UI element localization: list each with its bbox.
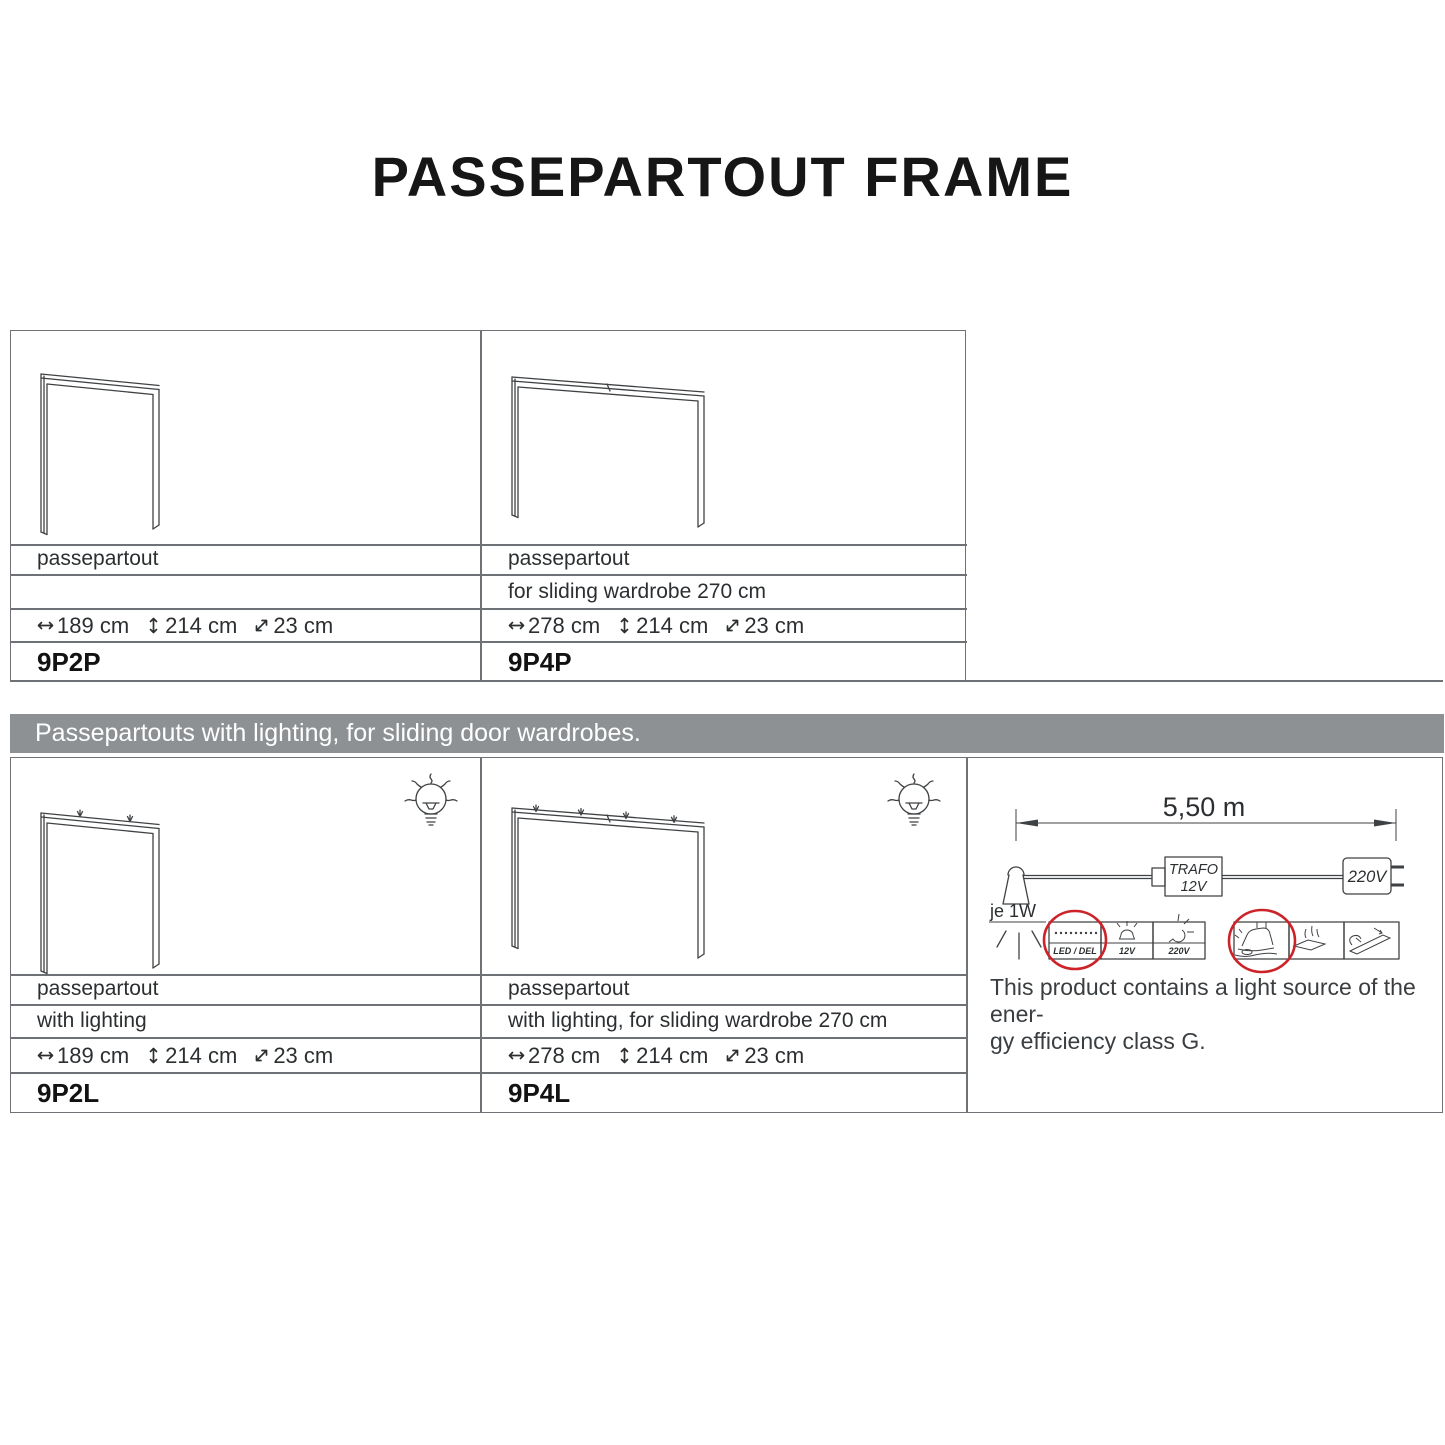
- dimension-depth: 23 cm: [724, 1043, 804, 1069]
- bulb-glyph: [1169, 914, 1194, 942]
- product-description: with lighting: [11, 1004, 480, 1038]
- dimension-height: 214 cm: [145, 613, 237, 639]
- table-divider: [966, 758, 968, 1112]
- depth-arrow-icon: [724, 617, 741, 634]
- product-description: [11, 575, 480, 609]
- transformer-label: TRAFO: [1169, 862, 1218, 878]
- product-description: for sliding wardrobe 270 cm: [482, 575, 967, 609]
- product-code: 9P4P: [482, 642, 967, 682]
- dimension-depth: 23 cm: [724, 613, 804, 639]
- lightbulb-icon: [886, 772, 942, 838]
- dimension-depth: 23 cm: [253, 613, 333, 639]
- product-cell-9p4p: passepartout for sliding wardrobe 270 cm…: [482, 331, 967, 681]
- dimension-width: 278 cm: [508, 613, 600, 639]
- width-arrow-icon: [508, 617, 525, 634]
- lighting-section-banner: Passepartouts with lighting, for sliding…: [10, 714, 1444, 753]
- lightbulb-icon: [403, 772, 459, 838]
- catalog-page: PASSEPARTOUT FRAME passepartout 189 cm: [0, 0, 1445, 1445]
- svg-text:LED / DEL: LED / DEL: [1053, 946, 1097, 956]
- mains-label: 220V: [1347, 868, 1389, 886]
- light-position-mark: [78, 810, 83, 817]
- product-name: passepartout: [11, 974, 480, 1004]
- dimension-width: 189 cm: [37, 1043, 129, 1069]
- dimension-height: 214 cm: [616, 1043, 708, 1069]
- cable-connector: [1152, 868, 1165, 886]
- dimension-height: 214 cm: [616, 613, 708, 639]
- depth-arrow-icon: [253, 1047, 270, 1064]
- led-batten-glyph: [1350, 928, 1390, 954]
- frame-drawing-icon: [35, 361, 175, 539]
- arrowhead-right: [1374, 820, 1396, 827]
- cable-line: [1024, 876, 1152, 879]
- product-cell-9p2p: passepartout 189 cm 214 cm 23 cm 9P2P: [11, 331, 480, 681]
- dimension-depth: 23 cm: [253, 1043, 333, 1069]
- red-highlight-circle: [1229, 910, 1295, 972]
- product-dimensions: 278 cm 214 cm 23 cm: [482, 1038, 966, 1073]
- led-dots: [1055, 932, 1097, 934]
- touch-dimmer-icon: [1289, 922, 1344, 959]
- dimension-width: 278 cm: [508, 1043, 600, 1069]
- product-dimensions: 189 cm 214 cm 23 cm: [11, 609, 480, 642]
- section-divider: [10, 680, 1443, 682]
- cable-length-label: 5,50 m: [1163, 792, 1246, 822]
- product-cell-9p4l: passepartout with lighting, for sliding …: [482, 758, 966, 1112]
- height-arrow-icon: [616, 1047, 633, 1064]
- touch-dimmer-glyph: [1294, 926, 1325, 950]
- lamp-power-label: je 1W: [989, 901, 1036, 921]
- red-highlight-circle: [1044, 911, 1106, 969]
- spotlight-icon: [1008, 867, 1024, 875]
- product-cell-9p2l: passepartout with lighting 189 cm 214 cm…: [11, 758, 480, 1112]
- height-arrow-icon: [616, 617, 633, 634]
- svg-text:220V: 220V: [1167, 946, 1190, 956]
- product-code: 9P2L: [11, 1073, 480, 1114]
- frame-drawing-icon: [506, 796, 718, 964]
- downlight-glyph: [1117, 921, 1137, 939]
- product-code: 9P4L: [482, 1073, 966, 1114]
- dimension-height: 214 cm: [145, 1043, 237, 1069]
- foot-switch-glyph: [1235, 922, 1277, 957]
- product-name: passepartout: [11, 544, 480, 574]
- depth-arrow-icon: [253, 617, 270, 634]
- product-dimensions: 278 cm 214 cm 23 cm: [482, 609, 967, 642]
- energy-note: This product contains a light source of …: [990, 974, 1442, 1055]
- product-name: passepartout: [482, 974, 966, 1004]
- product-dimensions: 189 cm 214 cm 23 cm: [11, 1038, 480, 1073]
- page-title: PASSEPARTOUT FRAME: [0, 144, 1445, 209]
- height-arrow-icon: [145, 1047, 162, 1064]
- arrowhead-left: [1016, 820, 1038, 827]
- frame-drawing-icon: [35, 800, 175, 978]
- height-arrow-icon: [145, 617, 162, 634]
- plug-prongs: [1391, 867, 1404, 885]
- dimension-width: 189 cm: [37, 613, 129, 639]
- light-position-mark: [128, 815, 133, 822]
- product-description: with lighting, for sliding wardrobe 270 …: [482, 1004, 966, 1038]
- width-arrow-icon: [37, 1047, 54, 1064]
- cable-line: [1222, 876, 1343, 879]
- svg-text:12V: 12V: [1119, 946, 1136, 956]
- frame-drawing-icon: [506, 365, 718, 533]
- lighting-products-table: passepartout with lighting 189 cm 214 cm…: [10, 757, 1443, 1113]
- width-arrow-icon: [508, 1047, 525, 1064]
- width-arrow-icon: [37, 617, 54, 634]
- light-rays: [997, 931, 1041, 959]
- wiring-diagram: 5,50 m TRAFO 12V 220V je 1W: [976, 791, 1442, 981]
- depth-arrow-icon: [724, 1047, 741, 1064]
- top-products-table: passepartout 189 cm 214 cm 23 cm 9P2P: [10, 330, 966, 681]
- product-code: 9P2P: [11, 642, 480, 682]
- svg-text:12V: 12V: [1181, 879, 1208, 895]
- product-name: passepartout: [482, 544, 967, 574]
